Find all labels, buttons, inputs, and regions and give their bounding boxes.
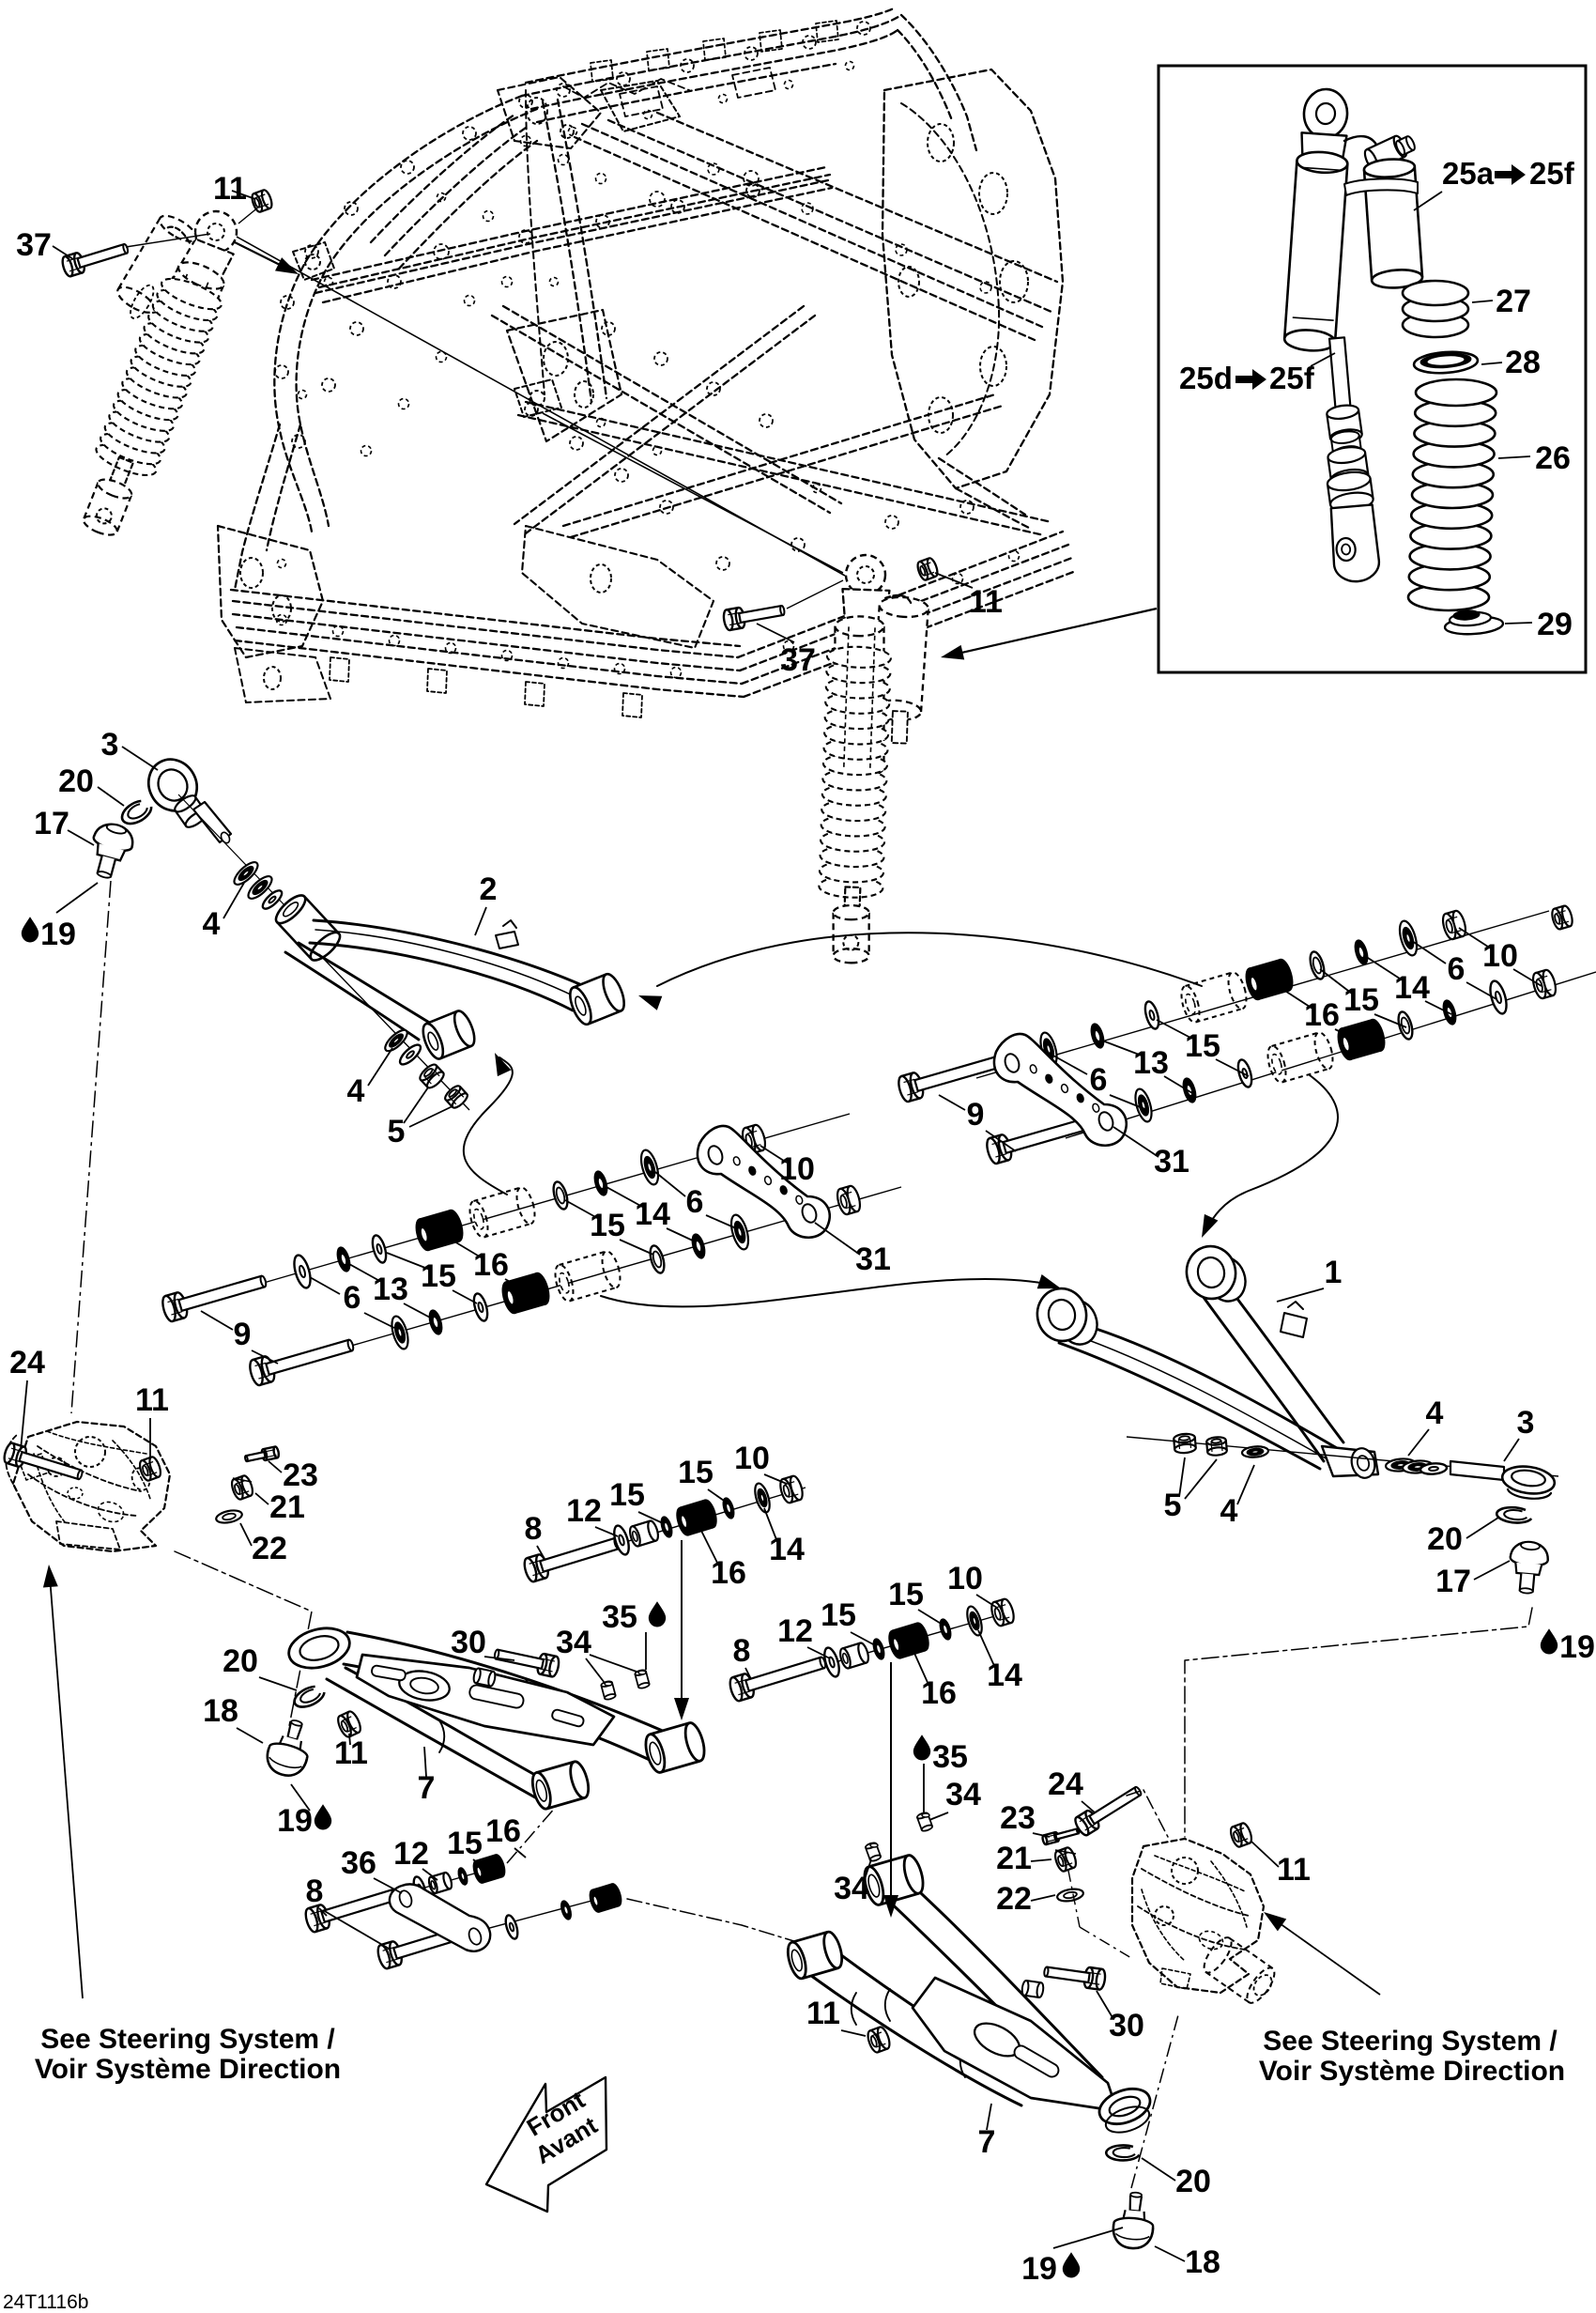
svg-text:11: 11 <box>135 1382 169 1418</box>
svg-text:11: 11 <box>969 584 1003 620</box>
svg-text:Voir Système Direction: Voir Système Direction <box>35 2054 341 2085</box>
svg-text:25d: 25d <box>1179 361 1233 395</box>
svg-text:16: 16 <box>1304 997 1340 1033</box>
svg-text:14: 14 <box>635 1196 670 1232</box>
svg-text:6: 6 <box>1448 951 1466 987</box>
svg-text:35: 35 <box>602 1599 637 1635</box>
svg-text:10: 10 <box>1482 938 1518 974</box>
svg-text:15: 15 <box>447 1826 483 1861</box>
svg-text:4: 4 <box>347 1073 365 1109</box>
svg-text:30: 30 <box>451 1625 486 1660</box>
svg-text:12: 12 <box>777 1613 813 1649</box>
svg-text:18: 18 <box>203 1693 238 1729</box>
svg-text:1: 1 <box>1325 1255 1343 1290</box>
svg-text:14: 14 <box>769 1532 805 1567</box>
svg-text:31: 31 <box>855 1241 891 1277</box>
svg-text:8: 8 <box>733 1633 751 1669</box>
svg-text:12: 12 <box>566 1493 602 1529</box>
svg-text:11: 11 <box>213 171 247 207</box>
svg-text:35: 35 <box>932 1739 968 1775</box>
svg-text:See Steering System /: See Steering System / <box>1263 2026 1558 2057</box>
svg-text:4: 4 <box>1220 1493 1238 1529</box>
svg-text:23: 23 <box>283 1457 318 1493</box>
svg-text:10: 10 <box>779 1151 815 1187</box>
svg-text:19: 19 <box>40 917 76 952</box>
svg-text:10: 10 <box>947 1561 983 1596</box>
svg-text:5: 5 <box>1164 1488 1182 1523</box>
svg-text:24T1116b: 24T1116b <box>3 2291 88 2313</box>
svg-text:29: 29 <box>1537 607 1573 642</box>
svg-text:34: 34 <box>945 1777 981 1812</box>
svg-text:10: 10 <box>734 1441 770 1476</box>
svg-text:17: 17 <box>1435 1564 1471 1599</box>
svg-text:See Steering System /: See Steering System / <box>40 2024 335 2055</box>
svg-text:17: 17 <box>34 806 69 841</box>
svg-text:37: 37 <box>780 642 816 678</box>
svg-text:8: 8 <box>525 1511 543 1547</box>
svg-text:8: 8 <box>306 1874 324 1909</box>
svg-text:15: 15 <box>821 1597 856 1633</box>
svg-text:19: 19 <box>1559 1629 1595 1665</box>
svg-text:25f: 25f <box>1269 361 1315 395</box>
svg-text:20: 20 <box>1427 1521 1463 1557</box>
svg-text:15: 15 <box>678 1455 714 1490</box>
svg-text:23: 23 <box>1000 1800 1036 1836</box>
svg-text:36: 36 <box>341 1845 376 1881</box>
svg-text:15: 15 <box>888 1577 924 1612</box>
svg-text:3: 3 <box>101 727 119 763</box>
svg-text:15: 15 <box>421 1258 456 1294</box>
svg-text:25a: 25a <box>1442 156 1495 191</box>
svg-text:15: 15 <box>1343 982 1379 1018</box>
svg-text:2: 2 <box>480 871 498 907</box>
svg-text:34: 34 <box>834 1871 869 1906</box>
svg-text:4: 4 <box>203 906 221 942</box>
svg-text:11: 11 <box>1277 1852 1311 1888</box>
svg-text:Voir Système Direction: Voir Système Direction <box>1259 2056 1565 2087</box>
svg-text:11: 11 <box>806 1996 840 2031</box>
svg-text:21: 21 <box>996 1841 1032 1876</box>
svg-text:13: 13 <box>1133 1045 1169 1081</box>
svg-text:6: 6 <box>1090 1062 1108 1098</box>
svg-text:11: 11 <box>334 1735 368 1771</box>
svg-text:22: 22 <box>252 1531 287 1566</box>
svg-text:15: 15 <box>609 1477 645 1513</box>
svg-text:15: 15 <box>590 1208 625 1243</box>
svg-text:28: 28 <box>1505 345 1541 380</box>
svg-text:20: 20 <box>58 763 94 799</box>
svg-text:34: 34 <box>556 1625 591 1660</box>
svg-text:3: 3 <box>1517 1405 1535 1441</box>
svg-text:16: 16 <box>485 1813 521 1849</box>
svg-text:19: 19 <box>277 1803 313 1839</box>
svg-text:27: 27 <box>1496 284 1531 319</box>
svg-text:25f: 25f <box>1529 156 1575 191</box>
svg-text:24: 24 <box>1048 1766 1083 1802</box>
svg-text:24: 24 <box>9 1345 45 1380</box>
svg-text:12: 12 <box>393 1836 429 1872</box>
svg-text:9: 9 <box>234 1317 252 1352</box>
svg-text:31: 31 <box>1154 1144 1189 1180</box>
svg-text:9: 9 <box>967 1097 985 1133</box>
svg-text:6: 6 <box>344 1280 361 1316</box>
svg-text:20: 20 <box>1175 2164 1211 2199</box>
svg-text:13: 13 <box>373 1272 408 1307</box>
svg-text:19: 19 <box>1021 2251 1057 2287</box>
svg-text:21: 21 <box>269 1489 305 1525</box>
svg-text:15: 15 <box>1185 1028 1220 1064</box>
svg-text:14: 14 <box>1394 970 1430 1006</box>
svg-text:18: 18 <box>1185 2244 1220 2280</box>
svg-text:5: 5 <box>388 1114 406 1149</box>
svg-text:22: 22 <box>996 1881 1032 1917</box>
svg-text:26: 26 <box>1535 440 1571 476</box>
svg-text:16: 16 <box>473 1247 509 1283</box>
svg-text:30: 30 <box>1109 2008 1144 2043</box>
svg-text:6: 6 <box>686 1184 704 1220</box>
svg-text:4: 4 <box>1426 1396 1444 1431</box>
svg-text:20: 20 <box>223 1643 258 1679</box>
svg-text:37: 37 <box>16 227 52 263</box>
